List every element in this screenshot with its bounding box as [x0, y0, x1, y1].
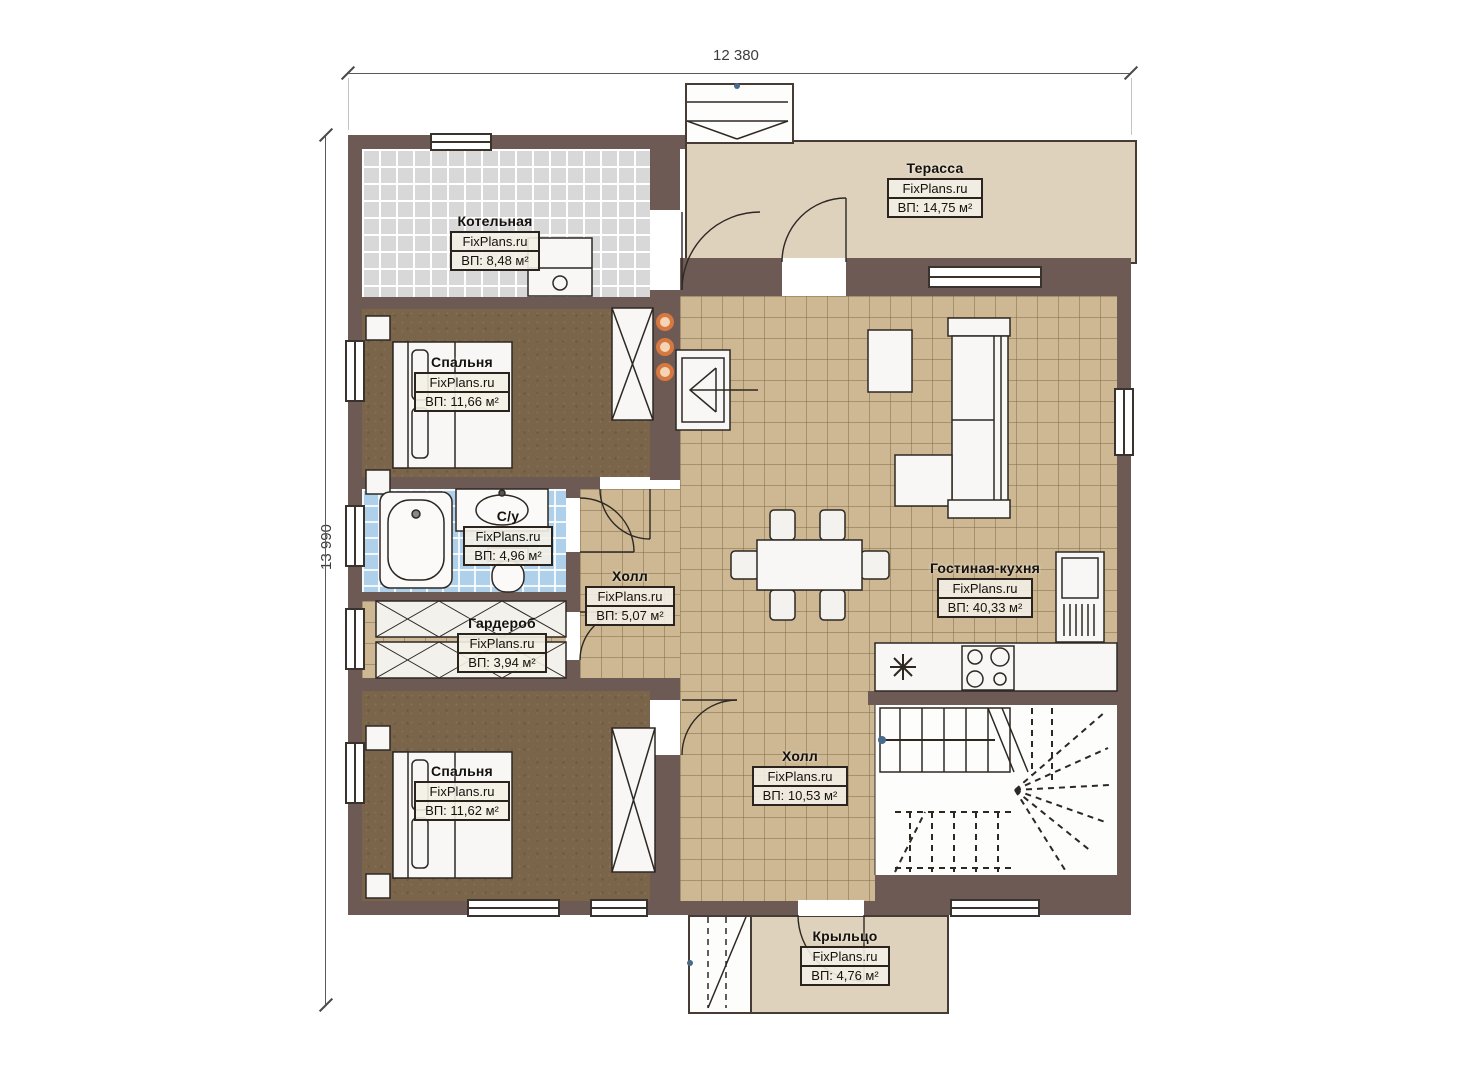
- wall-bedroom2-east: [650, 691, 680, 700]
- dimension-tick: [319, 128, 333, 142]
- room-area: ВП: 14,75 м²: [889, 199, 982, 216]
- wall-bedroom2-east: [650, 755, 680, 901]
- wall-wardrobe-bedroom2: [362, 678, 680, 691]
- door-opening-bedroom-2: [650, 700, 680, 755]
- wall-fireplace: [650, 290, 680, 480]
- brand-text: FixPlans.ru: [587, 588, 672, 607]
- room-area: ВП: 5,07 м²: [587, 607, 672, 624]
- room-name: С/у: [428, 508, 588, 524]
- brand-text: FixPlans.ru: [452, 233, 537, 252]
- wall-boiler-east: [650, 149, 680, 210]
- terrace-steps: [685, 83, 794, 144]
- floor-staircase: [875, 705, 1117, 875]
- window: [345, 742, 365, 804]
- room-name: Терасса: [855, 160, 1015, 176]
- floor-living-kitchen: [680, 296, 1117, 691]
- room-label-wardrobe: Гардероб FixPlans.ru ВП: 3,94 м²: [422, 615, 582, 673]
- room-area: ВП: 40,33 м²: [939, 599, 1032, 616]
- room-area: ВП: 3,94 м²: [459, 654, 544, 671]
- window: [950, 899, 1040, 917]
- window: [1114, 388, 1134, 456]
- room-name: Холл: [720, 748, 880, 764]
- room-label-bedroom-2: Спальня FixPlans.ru ВП: 11,62 м²: [382, 763, 542, 821]
- brand-text: FixPlans.ru: [939, 580, 1032, 599]
- room-area: ВП: 11,62 м²: [416, 802, 508, 819]
- brand-text: FixPlans.ru: [416, 374, 508, 393]
- room-label-terrace: Терасса FixPlans.ru ВП: 14,75 м²: [855, 160, 1015, 218]
- room-area: ВП: 4,96 м²: [465, 547, 550, 564]
- room-name: Спальня: [382, 354, 542, 370]
- dimension-height-label: 13 990: [318, 524, 335, 570]
- room-name: Холл: [550, 568, 710, 584]
- door-opening-entrance: [798, 900, 864, 916]
- window: [345, 608, 365, 670]
- room-label-bedroom-1: Спальня FixPlans.ru ВП: 11,66 м²: [382, 354, 542, 412]
- wall-boiler-bedroom1: [362, 297, 650, 309]
- window: [928, 266, 1042, 288]
- door-opening-bedroom-1: [600, 477, 650, 489]
- room-label-boiler: Котельная FixPlans.ru ВП: 8,48 м²: [415, 213, 575, 271]
- room-label-living-kitchen: Гостиная-кухня FixPlans.ru ВП: 40,33 м²: [905, 560, 1065, 618]
- extension-line: [348, 78, 349, 130]
- window: [345, 505, 365, 567]
- wall-bedroom1-bath: [362, 477, 600, 489]
- room-label-hall-large: Холл FixPlans.ru ВП: 10,53 м²: [720, 748, 880, 806]
- room-name: Котельная: [415, 213, 575, 229]
- dimension-height-line: [325, 135, 326, 1005]
- door-opening-boiler-terrace: [650, 210, 680, 290]
- dimension-width-line: [348, 73, 1131, 74]
- room-name: Крыльцо: [765, 928, 925, 944]
- floor-plan-canvas: 12 380 13 990: [0, 0, 1473, 1080]
- dimension-width-label: 12 380: [713, 47, 759, 64]
- room-area: ВП: 11,66 м²: [416, 393, 508, 410]
- room-name: Гостиная-кухня: [905, 560, 1065, 576]
- porch-steps: [688, 915, 752, 1014]
- brand-text: FixPlans.ru: [465, 528, 550, 547]
- room-label-porch: Крыльцо FixPlans.ru ВП: 4,76 м²: [765, 928, 925, 986]
- wall-top: [348, 135, 685, 149]
- room-name: Спальня: [382, 763, 542, 779]
- brand-text: FixPlans.ru: [459, 635, 544, 654]
- room-area: ВП: 8,48 м²: [452, 252, 537, 269]
- dimension-tick: [319, 998, 333, 1012]
- door-opening-terrace: [782, 258, 846, 296]
- room-area: ВП: 4,76 м²: [802, 967, 887, 984]
- brand-text: FixPlans.ru: [416, 783, 508, 802]
- window: [430, 133, 492, 151]
- wall-terrace-living: [668, 258, 1131, 296]
- brand-text: FixPlans.ru: [889, 180, 982, 199]
- room-name: Гардероб: [422, 615, 582, 631]
- wall-right: [1117, 258, 1131, 915]
- wall-bath-wardrobe: [362, 592, 566, 601]
- brand-text: FixPlans.ru: [754, 768, 847, 787]
- brand-text: FixPlans.ru: [802, 948, 887, 967]
- room-label-bathroom: С/у FixPlans.ru ВП: 4,96 м²: [428, 508, 588, 566]
- window: [467, 899, 560, 917]
- wall-bath-hall: [566, 477, 580, 498]
- room-area: ВП: 10,53 м²: [754, 787, 847, 804]
- wall-kitchen-stairs: [868, 691, 1131, 705]
- extension-line: [1131, 78, 1132, 135]
- window: [345, 340, 365, 402]
- window: [590, 899, 648, 917]
